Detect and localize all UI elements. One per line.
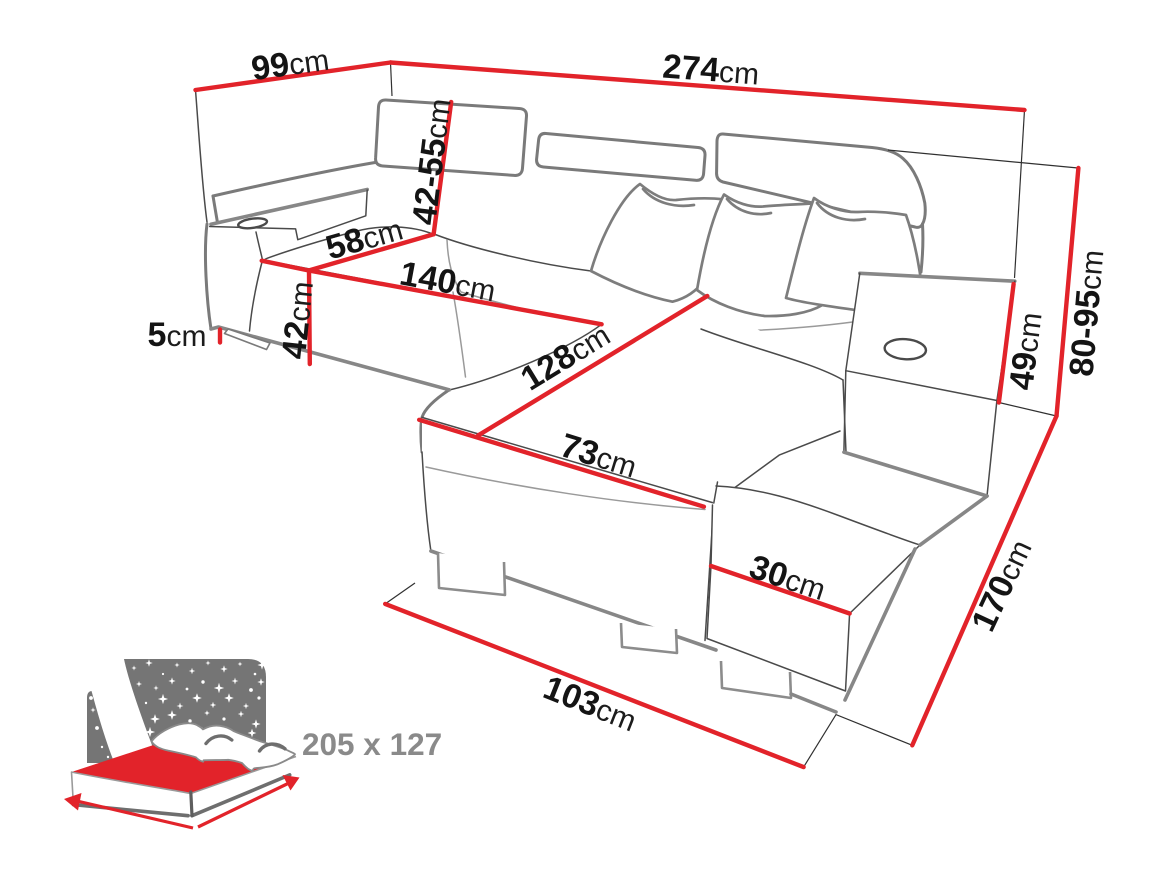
svg-text:5cm: 5cm (148, 316, 207, 354)
svg-text:205 x 127: 205 x 127 (302, 726, 442, 762)
